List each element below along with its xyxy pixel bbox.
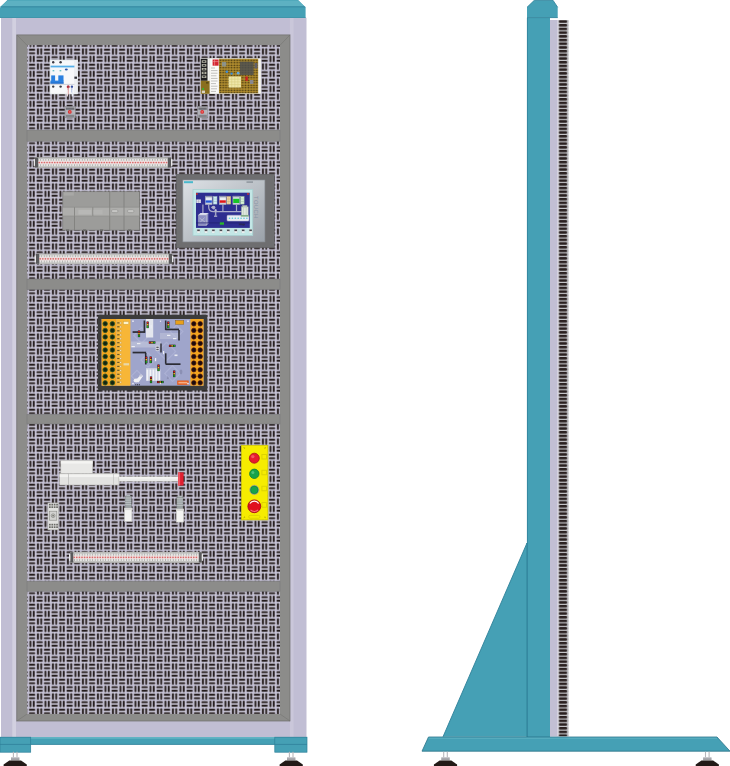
svg-text:TOUCH: TOUCH [253, 196, 259, 219]
